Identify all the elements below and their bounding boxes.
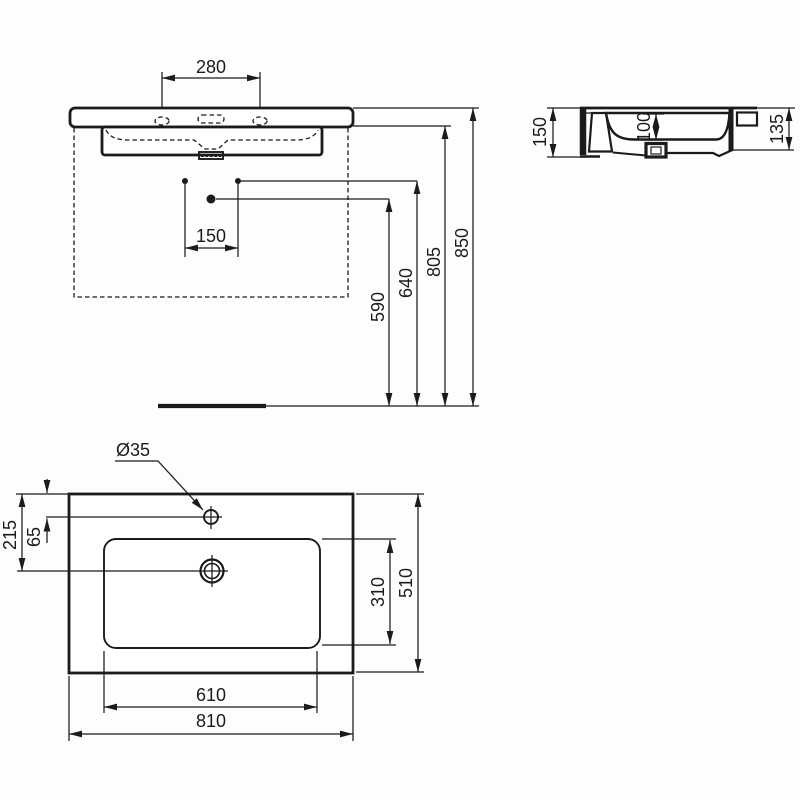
dim-drain-height: 590 — [368, 199, 389, 406]
dim-tap-setback: 65 — [24, 479, 47, 547]
dim-label-overall-width: 810 — [196, 711, 226, 731]
washbasin-technical-drawing: 280 150 — [0, 0, 800, 800]
dim-label-rim-bottom-height: 805 — [424, 247, 444, 277]
dim-label-connection-spacing: 150 — [196, 226, 226, 246]
side-apron-underside — [613, 153, 646, 156]
dim-label-drain-setback: 215 — [0, 520, 20, 550]
dim-label-drain-height: 590 — [368, 292, 388, 322]
dim-supply-height: 640 — [396, 181, 417, 406]
dim-label-supply-height: 640 — [396, 268, 416, 298]
basin-rim-front — [70, 108, 353, 127]
supply-connection-left-dot — [182, 178, 188, 184]
dim-label-overall-depth: 510 — [396, 568, 416, 598]
dim-label-tap-hole-dia: Ø35 — [116, 440, 150, 460]
dim-label-side-front-height: 150 — [530, 117, 550, 147]
dim-label-bowl-inner-width: 610 — [196, 685, 226, 705]
side-ledge-underside — [667, 150, 734, 157]
drain-connection-dot — [207, 195, 216, 204]
side-drain-outlet — [646, 144, 666, 158]
supply-connection-right-dot — [235, 178, 241, 184]
basin-body-front — [102, 127, 322, 155]
dim-label-bowl-inner-depth: 310 — [368, 577, 388, 607]
dim-label-bowl-depth: 100 — [634, 112, 654, 142]
front-elevation-view: 280 150 — [70, 57, 479, 406]
dim-label-tap-setback: 65 — [24, 527, 44, 547]
dim-label-overall-height: 850 — [452, 228, 472, 258]
dim-side-front-height: 150 — [530, 108, 553, 157]
dim-label-tap-spacing: 280 — [196, 57, 226, 77]
technical-drawing-page: 280 150 — [0, 0, 800, 800]
dim-overall-height: 850 — [452, 108, 473, 406]
dim-rim-bottom-height: 805 — [424, 126, 445, 406]
dim-side-rear-height: 135 — [767, 108, 789, 150]
dim-label-side-rear-height: 135 — [767, 114, 787, 144]
wall-bracket-recess — [737, 113, 757, 126]
side-bowl-profile — [606, 113, 730, 140]
plan-view: Ø35 215 65 310 510 — [0, 440, 424, 741]
dim-connection-spacing: 150 — [185, 226, 238, 248]
side-section-view: 150 100 135 — [530, 108, 795, 157]
